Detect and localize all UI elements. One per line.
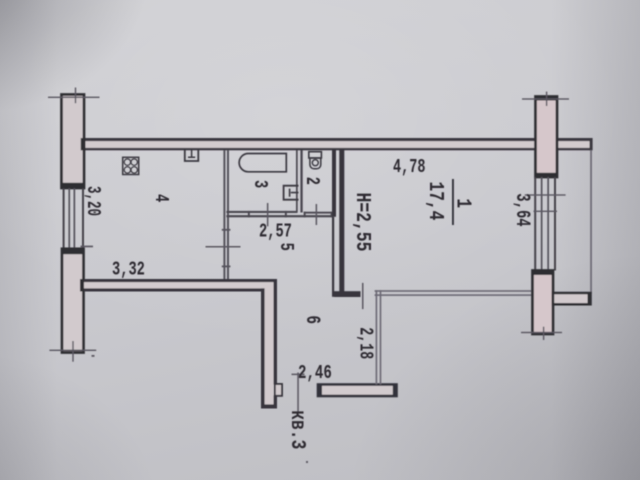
svg-text:2,18: 2,18: [353, 327, 375, 359]
svg-text:3,32: 3,32: [112, 259, 145, 281]
svg-text:Н=2,55: Н=2,55: [351, 193, 376, 252]
svg-text:3: 3: [248, 180, 270, 188]
svg-text:3,20: 3,20: [82, 186, 105, 216]
svg-text:4: 4: [149, 194, 171, 202]
svg-text:17,4: 17,4: [423, 182, 448, 221]
svg-text:4,78: 4,78: [393, 157, 425, 179]
svg-text:3,64: 3,64: [510, 193, 533, 226]
svg-text:2,57: 2,57: [259, 222, 292, 244]
svg-text:1: 1: [451, 198, 476, 208]
svg-text:5: 5: [274, 243, 296, 251]
svg-text:6: 6: [300, 315, 323, 324]
svg-text:2: 2: [300, 177, 322, 185]
svg-text:2,46: 2,46: [298, 363, 332, 385]
svg-text:кв.3: кв.3: [285, 410, 310, 449]
